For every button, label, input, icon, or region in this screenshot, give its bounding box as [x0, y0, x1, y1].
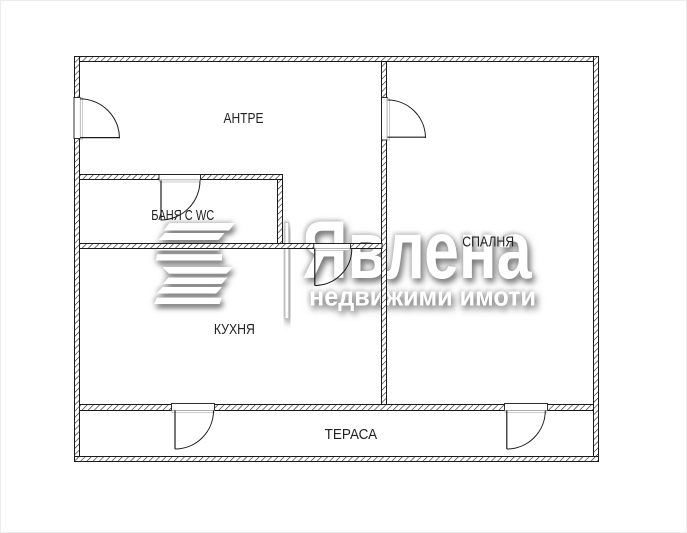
svg-text:ТЕРАСА: ТЕРАСА [325, 426, 378, 443]
svg-text:АНТРЕ: АНТРЕ [224, 110, 264, 127]
svg-text:недвижими имоти: недвижими имоти [309, 281, 536, 311]
svg-text:КУХНЯ: КУХНЯ [214, 321, 255, 338]
svg-text:БАНЯ С WC: БАНЯ С WC [151, 207, 214, 224]
svg-text:СПАЛНЯ: СПАЛНЯ [462, 234, 514, 251]
